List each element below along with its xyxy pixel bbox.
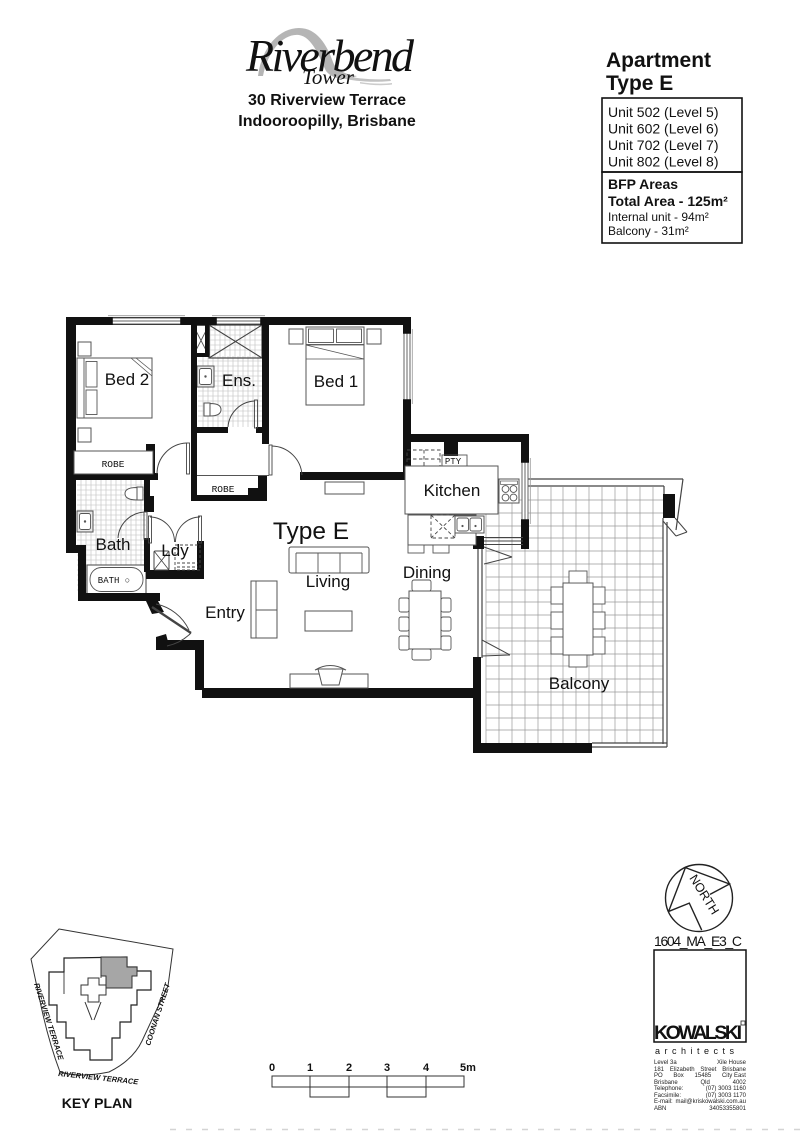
svg-text:Living: Living xyxy=(306,572,350,591)
svg-text:30 Riverview Terrace: 30 Riverview Terrace xyxy=(248,92,406,109)
svg-text:Balcony - 31m²: Balcony - 31m² xyxy=(608,224,689,238)
svg-text:RIVERVIEW TERRACE: RIVERVIEW TERRACE xyxy=(58,1069,140,1086)
svg-text:architects: architects xyxy=(655,1046,739,1056)
svg-text:Type E: Type E xyxy=(606,72,673,95)
svg-text:Ldy: Ldy xyxy=(161,541,189,560)
svg-text:Ens.: Ens. xyxy=(222,371,256,390)
svg-text:3: 3 xyxy=(384,1062,390,1074)
svg-text:BFP Areas: BFP Areas xyxy=(608,176,678,192)
svg-text:Balcony: Balcony xyxy=(549,674,610,693)
svg-text:Tower: Tower xyxy=(302,65,355,89)
svg-text:KEY PLAN: KEY PLAN xyxy=(62,1095,133,1111)
svg-text:0: 0 xyxy=(269,1062,275,1074)
svg-text:Entry: Entry xyxy=(205,603,245,622)
svg-text:Kitchen: Kitchen xyxy=(424,481,481,500)
svg-text:Bath: Bath xyxy=(96,535,131,554)
svg-text:1: 1 xyxy=(307,1062,313,1074)
svg-text:PTY: PTY xyxy=(445,457,462,467)
svg-text:Unit 702 (Level 7): Unit 702 (Level 7) xyxy=(608,137,719,153)
svg-text:1604_MA_E3_C: 1604_MA_E3_C xyxy=(654,933,742,949)
svg-text:Total Area - 125m²: Total Area - 125m² xyxy=(608,193,728,209)
svg-text:Unit 602 (Level 6): Unit 602 (Level 6) xyxy=(608,121,719,137)
svg-text:Apartment: Apartment xyxy=(606,49,711,72)
svg-text:Dining: Dining xyxy=(403,563,451,582)
svg-text:KOWALSKI: KOWALSKI xyxy=(654,1022,742,1044)
svg-text:5m: 5m xyxy=(460,1062,476,1074)
svg-text:2: 2 xyxy=(346,1062,352,1074)
svg-text:Bed 1: Bed 1 xyxy=(314,372,358,391)
svg-text:Unit 802 (Level 8): Unit 802 (Level 8) xyxy=(608,154,719,170)
svg-text:BATH ○: BATH ○ xyxy=(98,576,130,586)
svg-text:Bed 2: Bed 2 xyxy=(105,370,149,389)
svg-text:Internal unit - 94m²: Internal unit - 94m² xyxy=(608,210,709,224)
svg-text:ROBE: ROBE xyxy=(102,459,125,470)
svg-text:Indooroopilly, Brisbane: Indooroopilly, Brisbane xyxy=(238,113,416,130)
svg-text:ROBE: ROBE xyxy=(212,484,235,495)
svg-text:Type E: Type E xyxy=(273,518,349,545)
svg-text:Unit 502 (Level 5): Unit 502 (Level 5) xyxy=(608,104,719,120)
svg-text:4: 4 xyxy=(423,1062,430,1074)
